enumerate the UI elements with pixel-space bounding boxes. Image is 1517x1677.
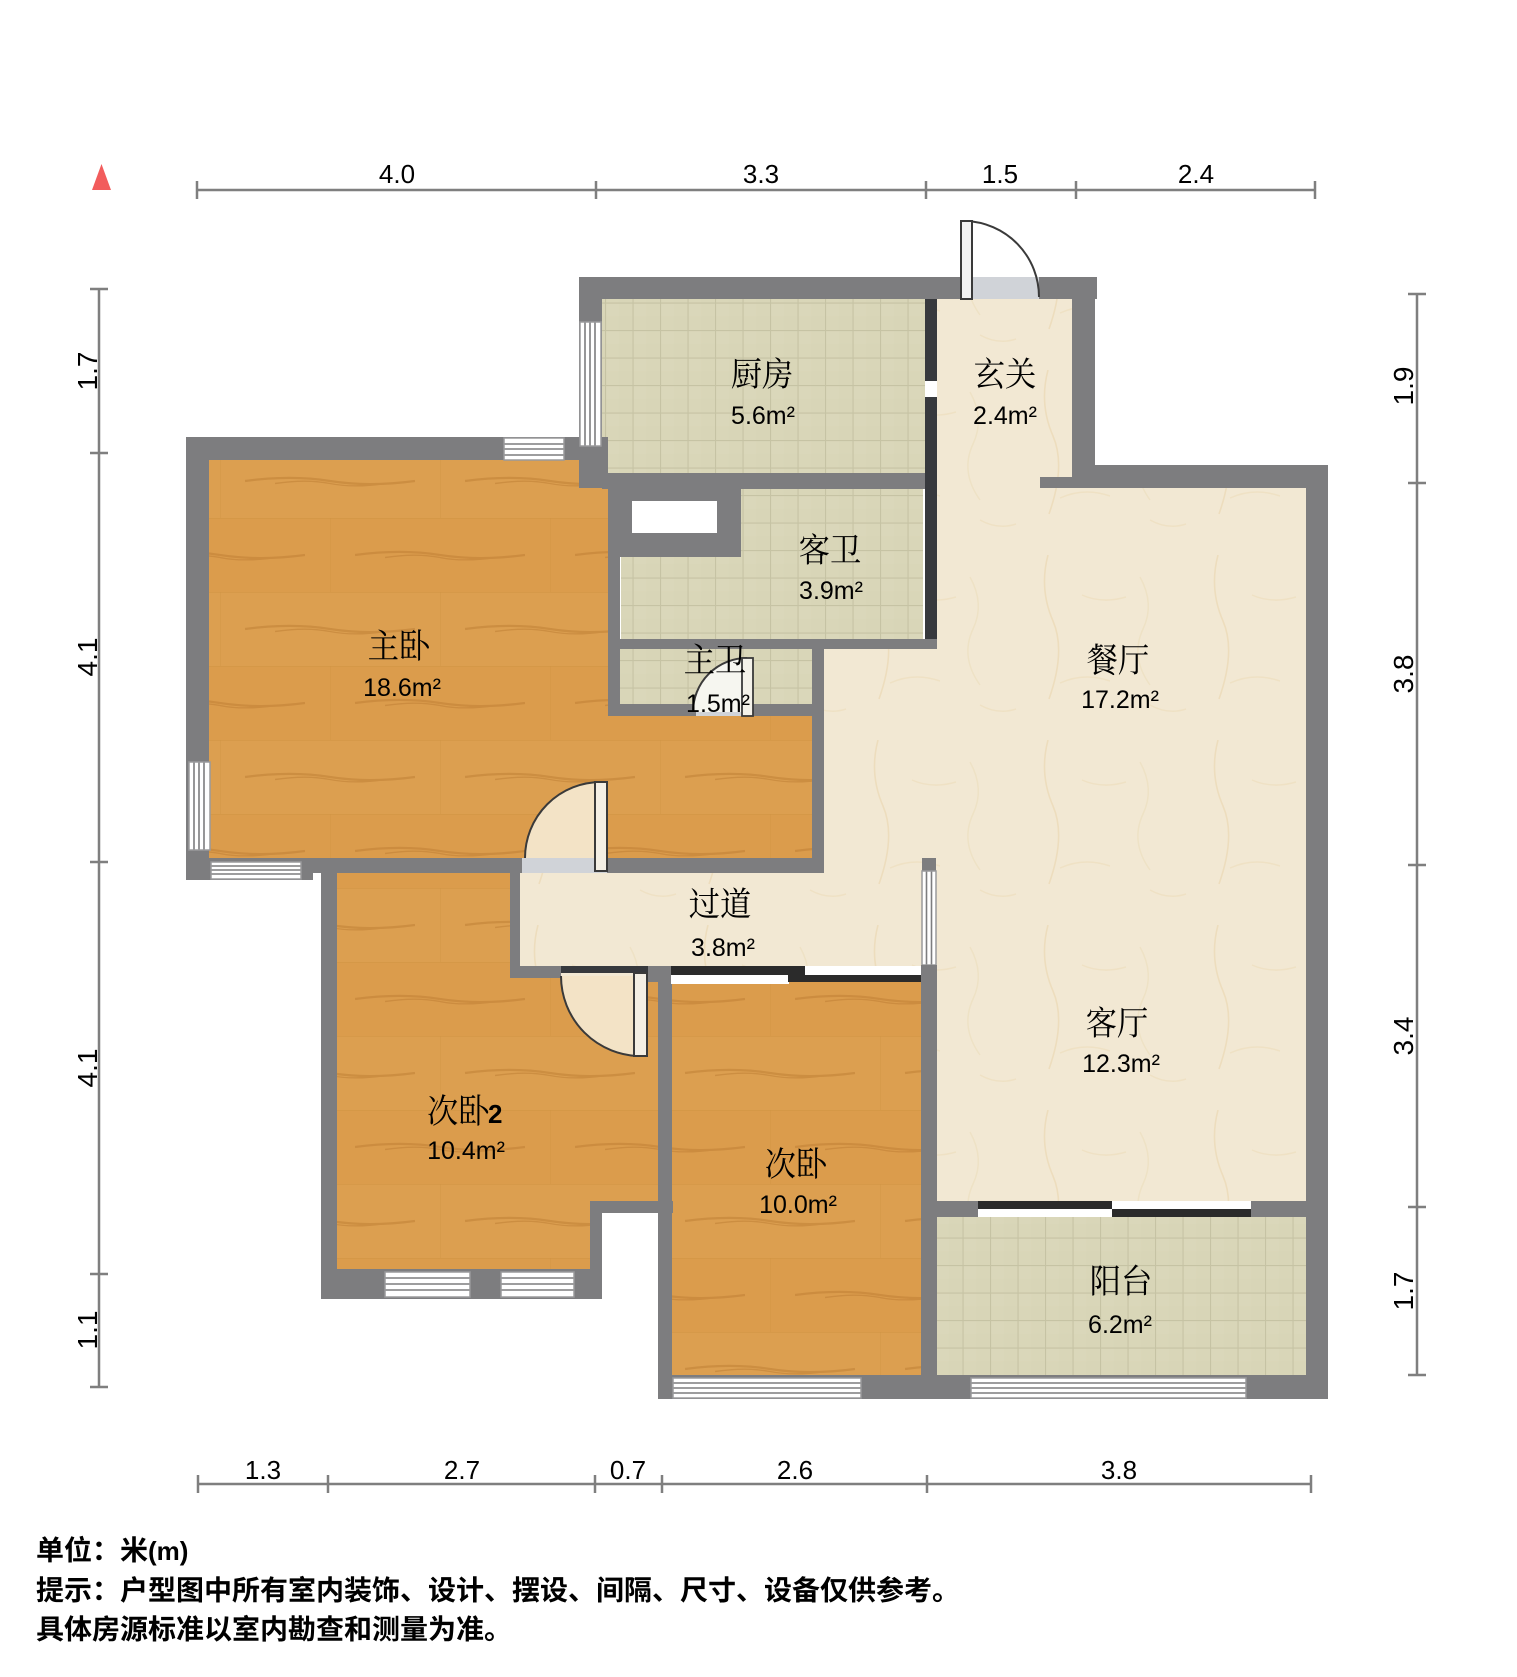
svg-text:3.8: 3.8: [1388, 655, 1419, 694]
svg-text:1.1: 1.1: [72, 1311, 103, 1350]
svg-text:0.7: 0.7: [610, 1455, 646, 1485]
svg-text:17.2m²: 17.2m²: [1081, 686, 1159, 714]
svg-text:2.7: 2.7: [444, 1455, 480, 1485]
svg-text:1.3: 1.3: [245, 1455, 281, 1485]
svg-text:1.7: 1.7: [1388, 1272, 1419, 1311]
svg-text:(m): (m): [148, 1536, 188, 1566]
svg-text:2: 2: [488, 1099, 502, 1129]
svg-text:1.9: 1.9: [1388, 367, 1419, 406]
svg-text:6.2m²: 6.2m²: [1088, 1311, 1152, 1339]
svg-text:3.3: 3.3: [743, 159, 779, 189]
svg-text:5.6m²: 5.6m²: [731, 402, 795, 430]
svg-text:1.5: 1.5: [982, 159, 1018, 189]
svg-text:18.6m²: 18.6m²: [363, 674, 441, 702]
svg-text:1.5m²: 1.5m²: [686, 690, 750, 718]
svg-text:4.0: 4.0: [379, 159, 415, 189]
svg-text:4.1: 4.1: [72, 1049, 103, 1088]
svg-text:1.7: 1.7: [72, 352, 103, 391]
svg-text:3.9m²: 3.9m²: [799, 577, 863, 605]
svg-text:2.4m²: 2.4m²: [973, 402, 1037, 430]
svg-text:10.4m²: 10.4m²: [427, 1137, 505, 1165]
svg-text:2.4: 2.4: [1178, 159, 1214, 189]
svg-text:2.6: 2.6: [777, 1455, 813, 1485]
svg-text:12.3m²: 12.3m²: [1082, 1050, 1160, 1078]
svg-text:3.4: 3.4: [1388, 1017, 1419, 1056]
svg-text:10.0m²: 10.0m²: [759, 1191, 837, 1219]
svg-text:4.1: 4.1: [72, 638, 103, 677]
svg-text:3.8: 3.8: [1101, 1455, 1137, 1485]
svg-text:3.8m²: 3.8m²: [691, 934, 755, 962]
